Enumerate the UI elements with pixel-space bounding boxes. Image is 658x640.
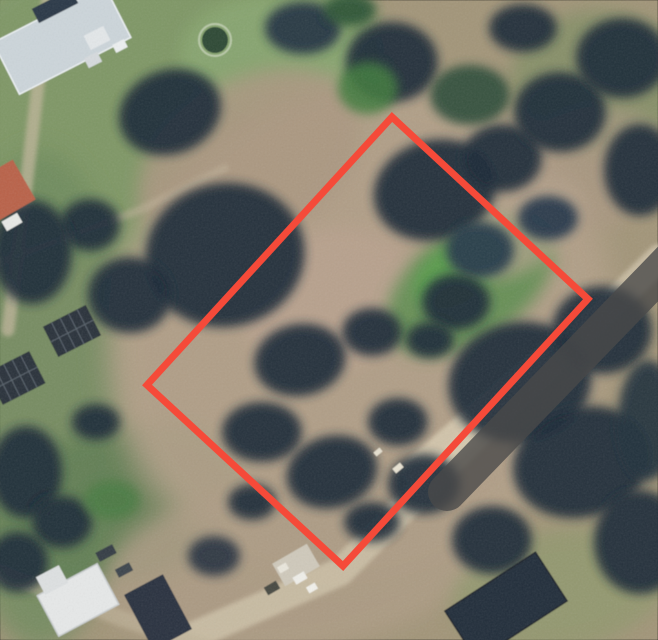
listing-photo-stage	[0, 0, 658, 640]
satellite-map-image[interactable]	[0, 0, 658, 640]
aerial-scene	[0, 0, 658, 640]
photo-grain	[0, 0, 658, 640]
